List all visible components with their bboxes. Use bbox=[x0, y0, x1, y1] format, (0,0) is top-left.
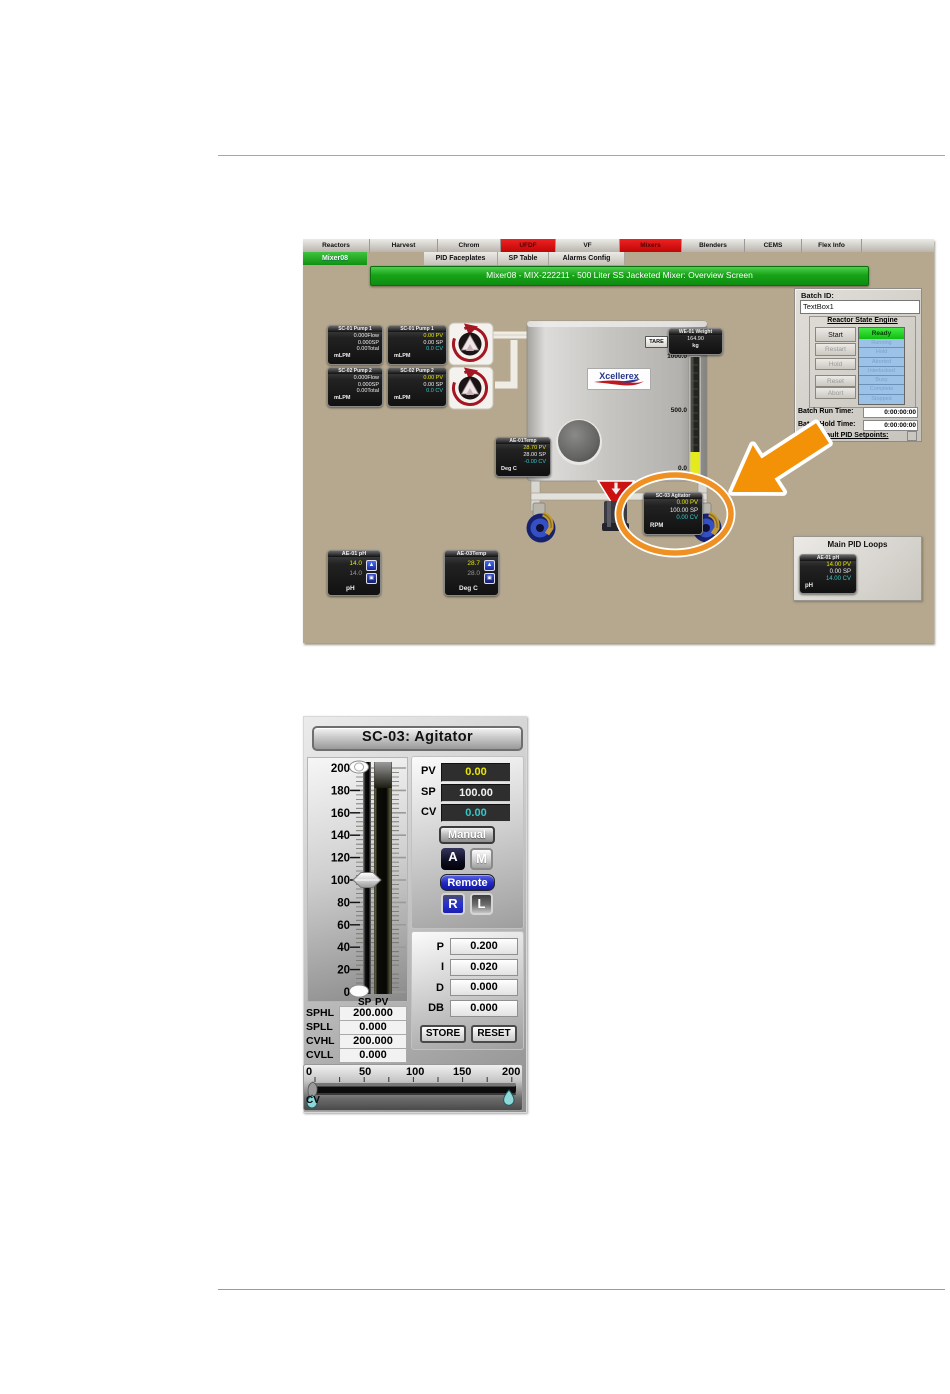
svg-text:200: 200 bbox=[331, 763, 350, 775]
svg-text:80: 80 bbox=[337, 897, 350, 909]
svg-text:120: 120 bbox=[331, 853, 350, 865]
svg-text:160: 160 bbox=[331, 808, 350, 820]
svg-text:40: 40 bbox=[337, 942, 350, 954]
svg-text:100: 100 bbox=[331, 875, 350, 887]
svg-text:0: 0 bbox=[344, 987, 350, 999]
svg-text:PV: PV bbox=[375, 997, 389, 1008]
svg-text:20: 20 bbox=[337, 965, 350, 977]
svg-text:140: 140 bbox=[331, 830, 350, 842]
svg-text:SP: SP bbox=[358, 997, 372, 1008]
svg-text:60: 60 bbox=[337, 920, 350, 932]
svg-text:180: 180 bbox=[331, 785, 350, 797]
